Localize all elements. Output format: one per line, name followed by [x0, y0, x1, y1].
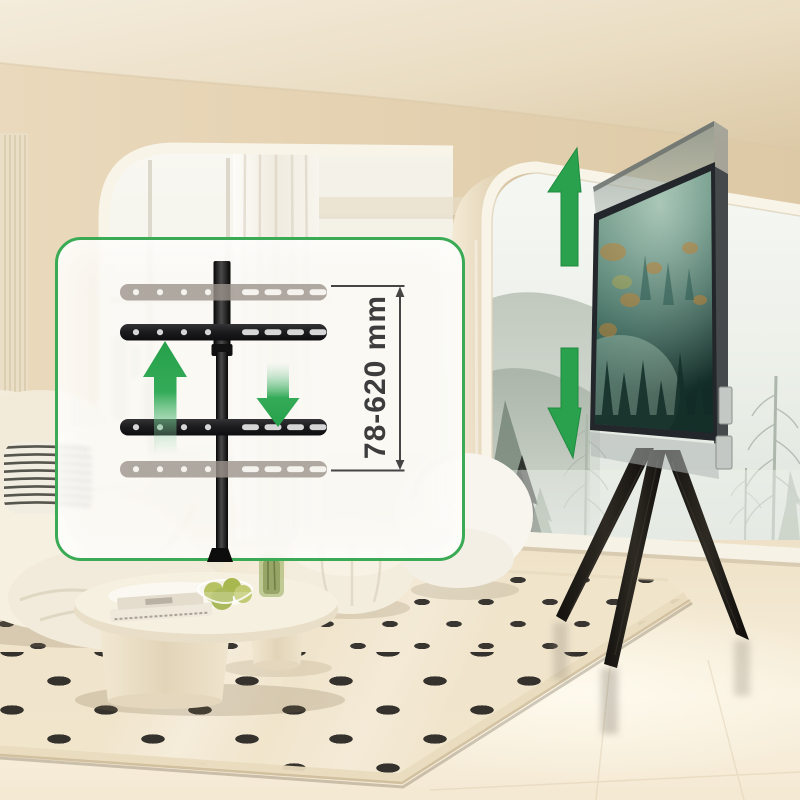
- right-window: [478, 170, 800, 560]
- tv: [540, 15, 780, 455]
- tv-bezel: [590, 162, 717, 441]
- ceiling: [0, 0, 800, 150]
- conifer-trees: [478, 400, 800, 552]
- tv-down-arrow-icon: [548, 348, 581, 458]
- bare-trees: [564, 376, 800, 548]
- window-sill: [430, 526, 800, 567]
- tv-ghost-lowered: [590, 432, 719, 479]
- window-top-frame: [297, 197, 467, 215]
- tv-ghost-raised: [593, 121, 728, 216]
- product-image: 78-620 mm: [0, 0, 800, 800]
- inset-diagram-panel: [55, 237, 465, 561]
- misty-ridge: [487, 368, 590, 560]
- slat-panel: [0, 133, 28, 428]
- height-range-label: 78-620 mm: [356, 277, 396, 477]
- mount-spacers: [716, 387, 732, 469]
- right-leg: [664, 450, 749, 640]
- tv-screen: [595, 171, 713, 433]
- tv-screen-image: [540, 15, 780, 455]
- misty-ridge: [487, 292, 600, 560]
- tv-up-arrow-icon: [548, 148, 581, 266]
- tv-side-edge: [714, 166, 728, 452]
